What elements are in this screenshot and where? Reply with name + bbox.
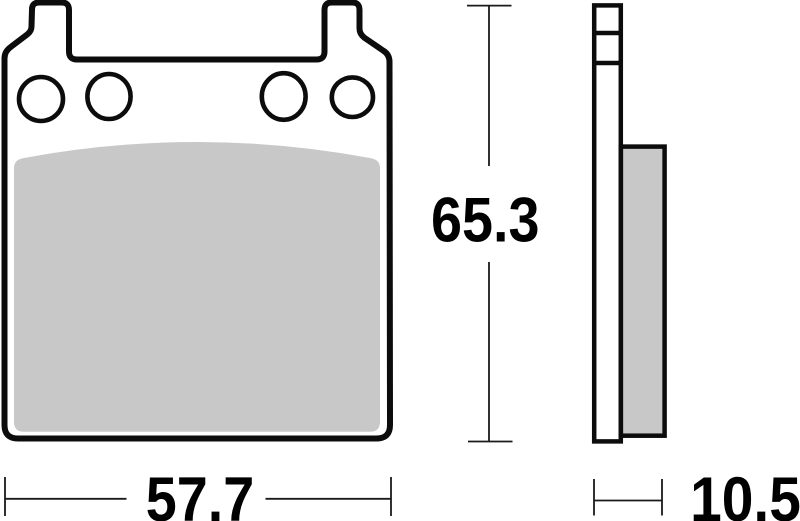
svg-text:65.3: 65.3: [431, 184, 539, 255]
svg-text:57.7: 57.7: [146, 464, 254, 521]
svg-text:10.5: 10.5: [690, 464, 800, 521]
